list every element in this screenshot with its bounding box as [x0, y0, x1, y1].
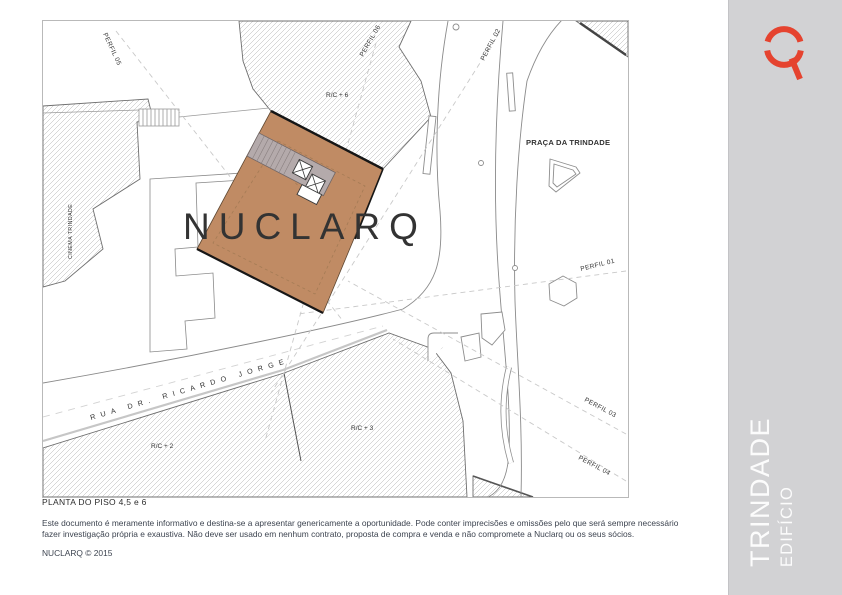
disclaimer: Este documento é meramente informativo e…	[42, 518, 742, 541]
label-praca: PRAÇA DA TRINDADE	[526, 138, 610, 147]
building-name: TRINDADE	[745, 417, 776, 567]
praca-kiosk	[549, 159, 580, 192]
watermark: NUCLARQ	[183, 206, 427, 247]
label-perfil-03: PERFIL 03	[583, 397, 617, 420]
label-cinema: CINEMA TRINDADE	[68, 204, 74, 259]
label-perfil-01: PERFIL 01	[580, 258, 616, 273]
plan-caption: PLANTA DO PISO 4,5 e 6	[42, 497, 147, 507]
building-cinema-trindade	[43, 99, 153, 287]
label-perfil-05: PERFIL 05	[101, 32, 122, 67]
brochure-page: PERFIL 05 PERFIL 06 PERFIL 02 PERFIL 01 …	[0, 0, 842, 595]
disclaimer-line-1: Este documento é meramente informativo e…	[42, 518, 742, 529]
label-rc6: R/C + 6	[326, 92, 349, 99]
label-perfil-02: PERFIL 02	[480, 28, 503, 62]
pentagon-planter	[481, 312, 505, 345]
label-perfil-04: PERFIL 04	[577, 455, 611, 478]
sidebar-title-block: TRINDADE EDIFÍCIO	[745, 417, 797, 567]
site-plan: PERFIL 05 PERFIL 06 PERFIL 02 PERFIL 01 …	[42, 20, 629, 498]
building-type: EDIFÍCIO	[778, 486, 797, 567]
nuclarq-q-logo	[761, 26, 807, 84]
label-rc2: R/C + 2	[151, 443, 174, 450]
brand-sidebar: TRINDADE EDIFÍCIO	[728, 0, 842, 595]
disclaimer-line-2: fazer investigação própria e exaustiva. …	[42, 529, 742, 540]
site-plan-drawing: PERFIL 05 PERFIL 06 PERFIL 02 PERFIL 01 …	[43, 21, 628, 497]
copyright: NUCLARQ © 2015	[42, 548, 112, 558]
label-rc3: R/C + 3	[351, 425, 374, 432]
